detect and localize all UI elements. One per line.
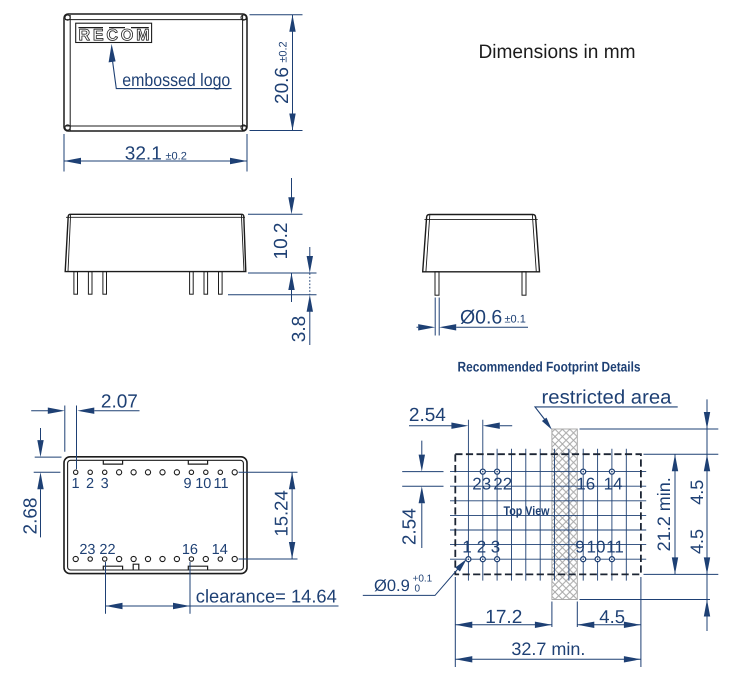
svg-text:15.24: 15.24: [270, 490, 291, 536]
svg-text:10.2: 10.2: [271, 223, 292, 260]
svg-text:2: 2: [86, 476, 94, 492]
svg-text:4.5: 4.5: [599, 606, 625, 627]
svg-text:±0.1: ±0.1: [505, 314, 526, 326]
svg-text:16: 16: [182, 542, 198, 558]
svg-text:1: 1: [71, 476, 79, 492]
svg-text:9: 9: [183, 476, 191, 492]
svg-text:23: 23: [79, 542, 95, 558]
svg-text:±0.2: ±0.2: [166, 151, 187, 163]
svg-text:Dimensions in mm: Dimensions in mm: [479, 41, 636, 63]
svg-text:22: 22: [99, 542, 115, 558]
svg-text:10: 10: [587, 537, 606, 556]
svg-text:32.1: 32.1: [125, 144, 162, 165]
svg-text:11: 11: [606, 537, 624, 556]
svg-text:Ø0.6: Ø0.6: [460, 307, 502, 329]
svg-text:23: 23: [472, 474, 491, 493]
svg-text:Ø0.9: Ø0.9: [374, 577, 410, 595]
svg-text:32.7 min.: 32.7 min.: [511, 639, 585, 659]
svg-text:±0.2: ±0.2: [278, 41, 290, 62]
svg-text:3: 3: [491, 537, 500, 556]
svg-text:2.54: 2.54: [400, 508, 421, 545]
svg-text:embossed logo: embossed logo: [122, 70, 230, 90]
svg-text:9: 9: [575, 537, 584, 556]
svg-text:2.07: 2.07: [101, 391, 138, 412]
svg-text:2.54: 2.54: [409, 405, 446, 426]
svg-text:20.6: 20.6: [272, 67, 293, 104]
svg-text:11: 11: [213, 476, 228, 492]
svg-text:Top View: Top View: [504, 504, 550, 518]
svg-text:3: 3: [101, 476, 109, 492]
svg-text:10: 10: [195, 476, 211, 492]
svg-text:0: 0: [415, 584, 421, 595]
svg-text:16: 16: [576, 474, 595, 493]
svg-text:3.8: 3.8: [289, 316, 310, 342]
svg-text:4.5: 4.5: [687, 480, 707, 505]
svg-text:14: 14: [604, 474, 623, 493]
svg-text:restricted area: restricted area: [542, 387, 672, 409]
svg-text:2: 2: [477, 537, 486, 556]
svg-text:14: 14: [212, 542, 228, 558]
svg-text:clearance= 14.64: clearance= 14.64: [196, 585, 337, 606]
svg-text:Recommended Footprint Details: Recommended Footprint Details: [458, 359, 641, 375]
svg-text:21.2 min.: 21.2 min.: [654, 477, 674, 551]
svg-text:2.68: 2.68: [20, 498, 41, 535]
svg-text:1: 1: [462, 537, 471, 556]
svg-text:4.5: 4.5: [687, 529, 707, 554]
svg-text:22: 22: [493, 474, 512, 493]
svg-text:17.2: 17.2: [485, 607, 522, 628]
